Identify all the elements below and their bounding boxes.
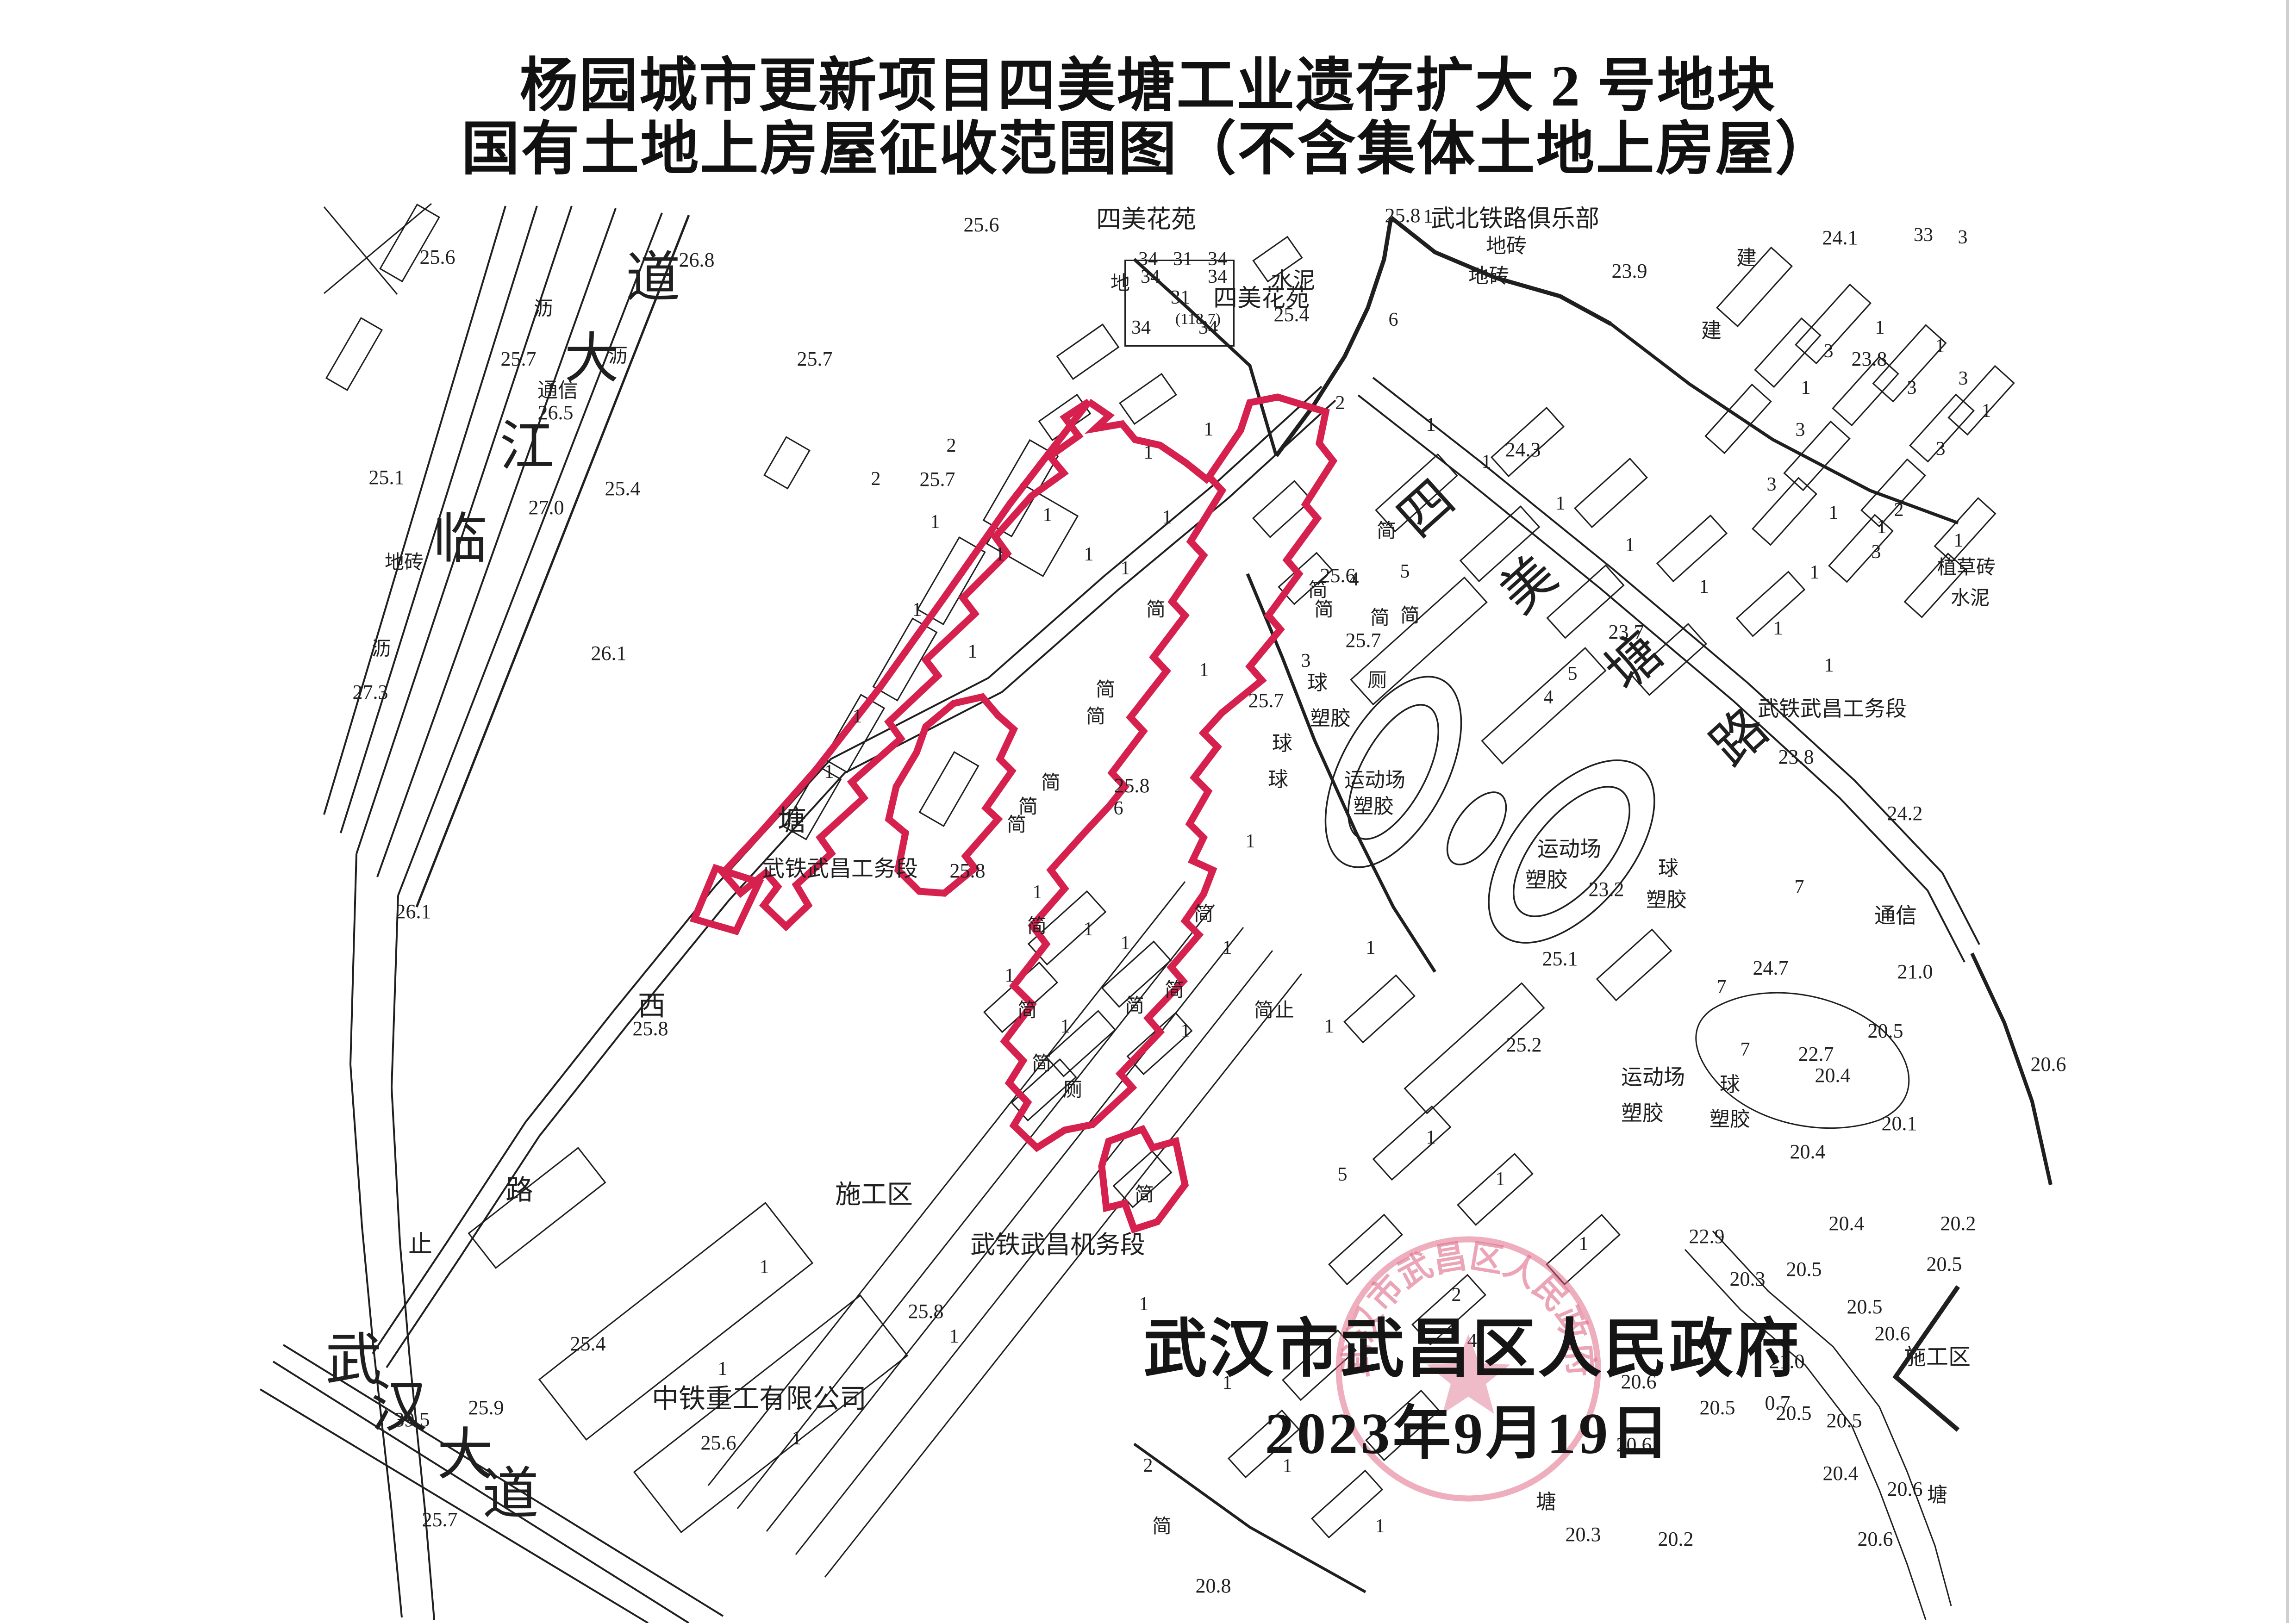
map-label: 临	[433, 509, 487, 570]
map-label: 25.7	[1248, 689, 1284, 712]
map-label: 25.8	[908, 1300, 944, 1323]
map-label: 厕	[1367, 670, 1387, 691]
map-label: 20.6	[1875, 1322, 1910, 1345]
map-label: 武铁武昌机务段	[970, 1231, 1145, 1259]
map-label: 22.7	[1798, 1043, 1834, 1065]
map-label: 3	[1872, 541, 1881, 563]
map-label: 简	[1041, 772, 1061, 794]
map-label: 地砖	[1486, 235, 1527, 257]
map-label: 2	[1143, 1455, 1153, 1476]
map-label: 25.6	[420, 246, 455, 268]
map-label: 1	[1426, 414, 1436, 435]
map-label: 3	[1958, 227, 1968, 248]
map-label: 1	[1482, 451, 1491, 473]
map-label: 球	[1268, 768, 1288, 791]
map-label: 23.9	[1612, 260, 1647, 282]
map-label: 1	[995, 544, 1005, 565]
map-label: 简	[1400, 605, 1420, 627]
map-label: 简	[1135, 1184, 1154, 1206]
map-label: 20.5	[1827, 1409, 1862, 1432]
map-label: 路	[505, 1175, 533, 1206]
map-label: 1	[1366, 937, 1376, 958]
map-label: 运动场	[1537, 837, 1601, 861]
map-label: 1	[1324, 1016, 1334, 1037]
map-label: 简	[1152, 1516, 1172, 1537]
map-label: 20.4	[1823, 1462, 1859, 1485]
map-label: 1	[1496, 1169, 1505, 1190]
map-label: 2	[1894, 499, 1904, 521]
map-label: 1	[853, 706, 862, 727]
map-label: 球	[1720, 1073, 1740, 1096]
map-label: 3	[1301, 650, 1311, 672]
map-label: 26.5	[538, 401, 574, 424]
map-label: 1	[1375, 1516, 1385, 1537]
map-label: 1	[1084, 919, 1093, 940]
map-label: 1	[1144, 442, 1154, 463]
issue-date: 2023年9月19日	[1265, 1402, 1672, 1466]
map-label: 25.6	[964, 213, 999, 236]
map-label: 6	[1389, 309, 1398, 330]
map-label: 简	[1254, 1000, 1273, 1021]
title-line-2: 国有土地上房屋征收范围图（不含集体土地上房屋）	[462, 118, 1835, 182]
map-label: 34	[1141, 266, 1160, 287]
map-label: 26.8	[679, 249, 715, 271]
map-label: 25.1	[1542, 947, 1578, 970]
map-label: 施工区	[1904, 1345, 1971, 1369]
map-label: 20.2	[1658, 1528, 1694, 1550]
map-label: 23.7	[1609, 621, 1644, 643]
map-label: 建	[1701, 319, 1722, 342]
map-label: 5	[1338, 1164, 1348, 1185]
map-label: 20.6	[1887, 1478, 1923, 1500]
map-label: 通信	[537, 379, 578, 402]
map-label: 建	[1736, 247, 1757, 269]
map-label: 1	[1061, 1016, 1070, 1037]
map-label: 25.7	[920, 468, 955, 491]
map-label: 止	[1275, 1000, 1294, 1021]
map-label: 武北铁路俱乐部	[1431, 206, 1599, 232]
map-label: 1	[1824, 655, 1834, 676]
map-label: 25.8	[950, 859, 986, 882]
map-label: 1	[760, 1256, 769, 1278]
map-label: 1	[1223, 937, 1232, 958]
map-label: 1	[1579, 1233, 1589, 1255]
map-label: 24.3	[1505, 438, 1541, 461]
map-label: 21.0	[1897, 960, 1933, 983]
title-line-1: 杨园城市更新项目四美塘工业遗存扩大 2 号地块	[520, 54, 1777, 118]
map-label: 7	[1717, 976, 1727, 998]
map-label: 3	[1907, 377, 1917, 398]
map-label: 道	[482, 1463, 539, 1526]
map-label: 25.4	[570, 1332, 606, 1355]
map-label: 球	[1658, 857, 1678, 880]
map-label: 24.7	[1753, 957, 1789, 979]
map-label: 20.5	[1927, 1253, 1962, 1275]
map-label: 27.3	[353, 681, 388, 703]
map-label: 四美花苑	[1096, 205, 1196, 233]
map-label: 23.8	[1852, 348, 1887, 370]
map-label: 25.4	[1274, 303, 1310, 326]
map-label: 简	[1194, 904, 1213, 925]
map-label: 1	[1162, 507, 1172, 528]
map-label: 27.0	[529, 496, 564, 519]
expropriation-map: 临江大道武汉大道四美塘路塘西路止止四美花苑武北铁路俱乐部地砖地砖水泥四美花苑武铁…	[0, 0, 2296, 1623]
map-label: 江	[499, 417, 554, 477]
map-label: 34	[1131, 317, 1151, 338]
map-label: 1	[1033, 882, 1042, 903]
map-label: 3	[1959, 368, 1968, 389]
map-label: 塑胶	[1353, 795, 1394, 818]
map-label: 23.8	[1778, 746, 1814, 768]
map-label: 24.2	[1887, 802, 1923, 825]
map-label: 25.6	[701, 1431, 736, 1454]
map-label: 1	[949, 1326, 959, 1347]
map-label: 1	[1121, 933, 1130, 954]
map-label: 1	[1005, 965, 1015, 986]
map-label: 4	[1349, 569, 1359, 590]
map-label: 20.5	[1786, 1258, 1822, 1281]
map-label: 通信	[1874, 904, 1917, 927]
map-label: 简	[1007, 815, 1026, 836]
map-label: 26.1	[396, 900, 431, 923]
map-label: 简	[1377, 521, 1396, 542]
map-label: 1	[1773, 618, 1783, 639]
map-label: 道	[626, 248, 680, 308]
map-label: 武铁武昌工务段	[1758, 697, 1907, 721]
map-label: 31	[1171, 287, 1190, 308]
map-label: 1	[1982, 400, 1991, 422]
map-label: 运动场	[1621, 1065, 1685, 1089]
map-label: 1	[1699, 576, 1709, 597]
map-label: 24.1	[1822, 226, 1858, 249]
map-label: 简	[1086, 706, 1105, 728]
map-title: 杨园城市更新项目四美塘工业遗存扩大 2 号地块 国有土地上房屋征收范围图（不含集…	[462, 54, 1835, 182]
map-label: 运动场	[1344, 769, 1405, 791]
map-label: 20.5	[1868, 1020, 1903, 1042]
map-label: 1	[1204, 419, 1214, 440]
map-label: 2	[947, 435, 956, 456]
map-label: 1	[1875, 317, 1885, 338]
map-label: 1	[1043, 504, 1053, 526]
map-label: 25.7	[797, 348, 833, 370]
map-label: 塘	[1927, 1484, 1947, 1506]
map-label: 塑胶	[1646, 889, 1687, 911]
map-label: 1	[1121, 558, 1130, 579]
map-label: 20.5	[1847, 1295, 1883, 1318]
map-label: 20.4	[1815, 1064, 1851, 1087]
map-label: 简	[1017, 1000, 1037, 1021]
map-label: 简	[1032, 1053, 1051, 1075]
map-label: 2	[1452, 1284, 1461, 1306]
map-label: 1	[1877, 516, 1887, 538]
map-label: 塑胶	[1621, 1101, 1664, 1125]
map-label: 中铁重工有限公司	[652, 1384, 867, 1414]
map-label: 1	[1810, 562, 1820, 583]
map-label: 20.3	[1566, 1523, 1601, 1546]
map-label: 止	[408, 1231, 432, 1258]
map-label: 25.7	[1346, 629, 1381, 652]
map-label: 施工区	[835, 1181, 913, 1209]
map-label: 2	[1335, 392, 1345, 414]
map-label: 1	[824, 761, 834, 783]
map-label: 塑胶	[1310, 707, 1351, 730]
map-label: 地砖	[1468, 265, 1509, 287]
map-label: 25.2	[1506, 1033, 1542, 1056]
map-label: 地	[1111, 273, 1130, 294]
map-label: 简	[1146, 599, 1166, 621]
map-label: 1	[1423, 206, 1433, 227]
map-label: 1	[968, 641, 978, 662]
map-label: 3	[1767, 474, 1777, 495]
map-label: 20.1	[1882, 1112, 1917, 1135]
map-label: 3	[1936, 438, 1946, 460]
map-label: 水泥	[1951, 588, 1990, 609]
map-label: 20.6	[1858, 1528, 1893, 1550]
map-label: 3	[1824, 341, 1834, 362]
map-label: 塑胶	[1525, 868, 1568, 892]
map-label: 34	[1208, 266, 1227, 287]
map-label: 20.6	[2031, 1053, 2066, 1076]
map-label: 1	[930, 511, 940, 533]
map-label: 塑胶	[1710, 1108, 1750, 1131]
map-label: 22.9	[1689, 1225, 1725, 1248]
map-label: 25.8	[633, 1017, 668, 1040]
map-label: 25.7	[501, 348, 537, 370]
map-label: 1	[1246, 831, 1255, 852]
map-label: 沥	[608, 346, 628, 367]
map-label: 20.2	[1940, 1212, 1976, 1235]
map-label: 23.2	[1589, 878, 1624, 901]
map-label: 20.5	[1776, 1402, 1812, 1424]
map-label: 20.3	[1730, 1268, 1766, 1290]
map-label: 5	[1400, 561, 1410, 582]
map-label: 简	[1165, 980, 1184, 1001]
map-label: 1	[1139, 1293, 1149, 1315]
map-label: 1	[1556, 493, 1566, 514]
map-label: 简	[1027, 916, 1047, 937]
map-label: 1	[1084, 544, 1094, 565]
map-label: 7	[1741, 1039, 1750, 1060]
map-label: 球	[1307, 672, 1328, 694]
map-label: 简	[1125, 995, 1144, 1017]
map-label: 武铁武昌工务段	[762, 857, 918, 881]
map-label: 1	[1829, 502, 1839, 523]
map-label: 1	[1625, 535, 1635, 556]
map-label: 25.9	[468, 1396, 504, 1419]
map-label: 4	[1544, 687, 1554, 708]
map-label: 1	[1199, 659, 1209, 681]
map-label: 塘	[1536, 1491, 1556, 1513]
map-label: 1	[1801, 377, 1811, 398]
map-label: 3	[1796, 419, 1805, 441]
map-label: 1	[1954, 530, 1964, 551]
map-label: 25.8	[1114, 774, 1150, 797]
map-label: 1	[1935, 336, 1945, 357]
map-label: 25.4	[605, 477, 641, 500]
issuing-authority: 武汉市武昌区人民政府	[1143, 1314, 1801, 1385]
map-label: 20.5	[1700, 1396, 1735, 1419]
map-label: 31	[1173, 249, 1192, 270]
map-label: 7	[1795, 877, 1804, 898]
map-label: 25.1	[369, 466, 405, 489]
map-label: 1	[718, 1358, 728, 1380]
map-label: 植草砖	[1937, 557, 1996, 578]
map-label: 厕	[1063, 1080, 1082, 1101]
map-label: 地砖	[385, 552, 424, 573]
map-label: 球	[1272, 732, 1292, 755]
map-label: 1	[1181, 1020, 1191, 1042]
map-label: 25.7	[422, 1508, 458, 1531]
map-label: 简	[1096, 679, 1115, 701]
map-label: 简	[1370, 608, 1390, 629]
map-label: 1	[792, 1428, 802, 1449]
map-label: 20.4	[1829, 1212, 1865, 1235]
map-label: 2	[871, 468, 881, 490]
map-label: 20.4	[1790, 1140, 1826, 1163]
map-label: 1	[912, 599, 922, 621]
map-label: 39.5	[394, 1408, 430, 1431]
map-label: 34	[1198, 317, 1218, 338]
map-label: 26.1	[591, 642, 627, 665]
map-label: 6	[1114, 798, 1123, 819]
map-label: 沥	[534, 298, 553, 320]
map-label: 33	[1914, 224, 1933, 246]
map-label: 简	[1314, 599, 1334, 621]
map-label: 1	[1426, 1127, 1436, 1148]
map-label: 1	[784, 808, 793, 829]
map-label: 5	[1568, 663, 1578, 684]
map-label: 沥	[372, 639, 391, 660]
map-label: 20.8	[1196, 1574, 1231, 1597]
map-label: 25.8	[1385, 204, 1421, 227]
